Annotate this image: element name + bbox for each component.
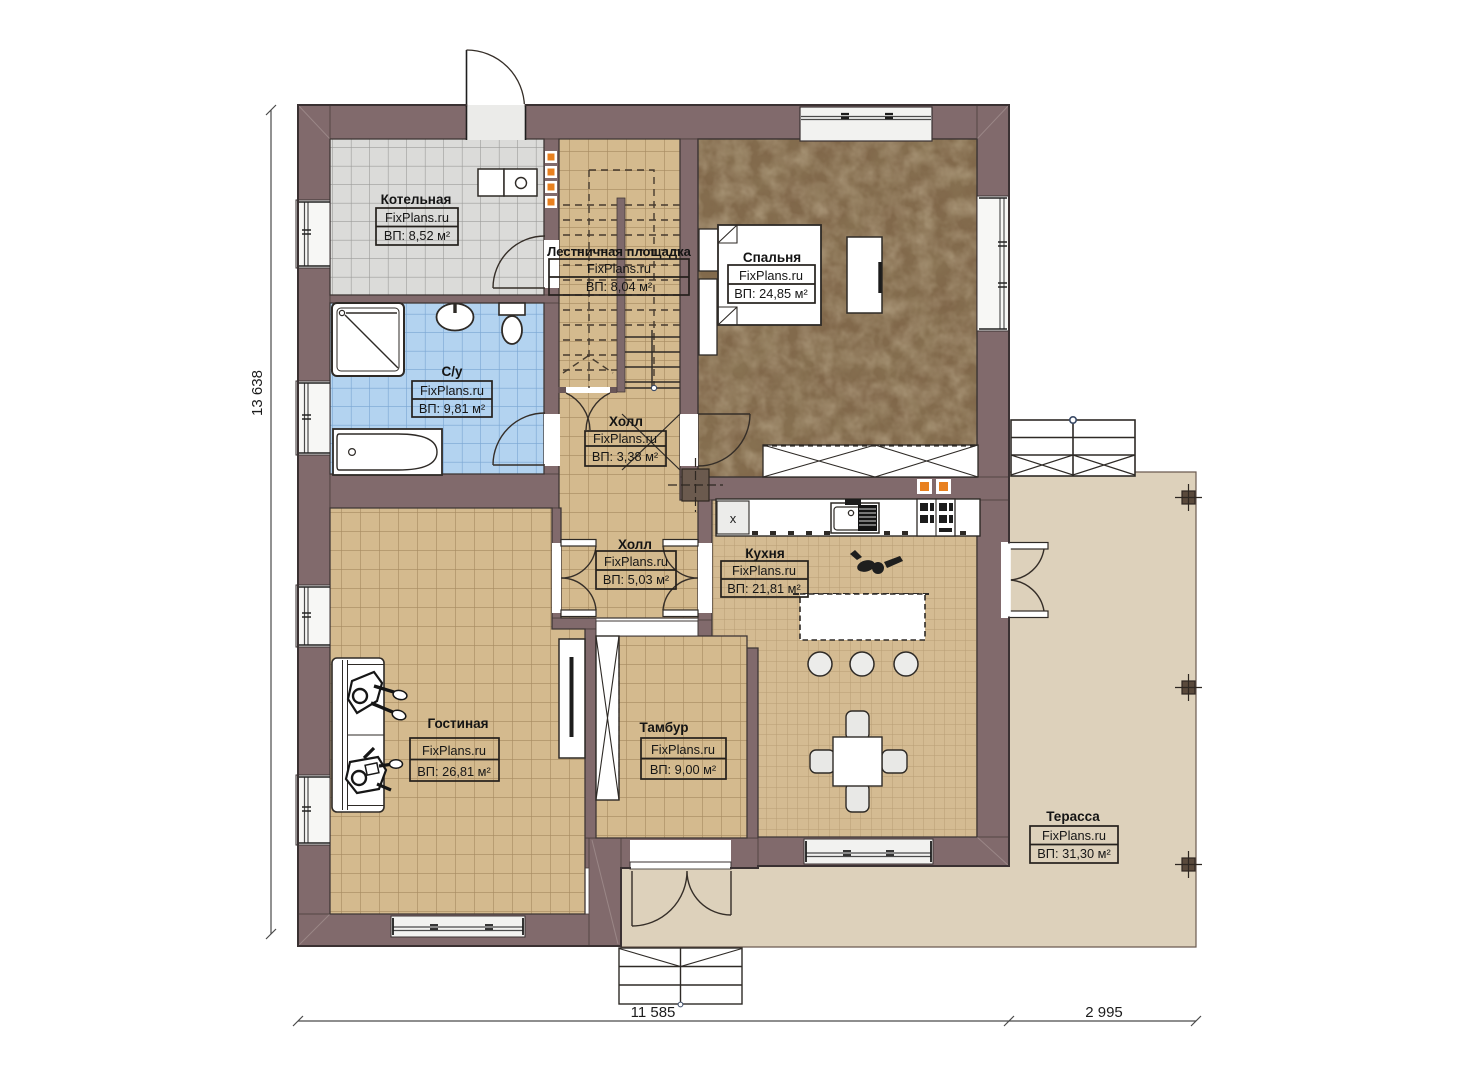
svg-text:Лестничная площадка: Лестничная площадка <box>547 244 691 259</box>
svg-text:ВП: 8,52 м²: ВП: 8,52 м² <box>384 228 451 243</box>
svg-text:ВП: 5,03 м²: ВП: 5,03 м² <box>603 572 670 587</box>
svg-text:Холл: Холл <box>609 414 643 429</box>
svg-text:2 995: 2 995 <box>1085 1004 1123 1021</box>
svg-text:Тамбур: Тамбур <box>640 720 689 735</box>
svg-text:FixPlans.ru: FixPlans.ru <box>732 563 796 578</box>
svg-text:FixPlans.ru: FixPlans.ru <box>739 268 803 283</box>
svg-text:Котельная: Котельная <box>381 192 452 207</box>
svg-text:ВП: 8,04 м²: ВП: 8,04 м² <box>586 279 653 294</box>
svg-text:11 585: 11 585 <box>631 1004 676 1021</box>
svg-text:ВП: 21,81 м²: ВП: 21,81 м² <box>727 581 801 596</box>
svg-text:ВП: 9,81 м²: ВП: 9,81 м² <box>419 401 486 416</box>
svg-text:FixPlans.ru: FixPlans.ru <box>604 554 668 569</box>
svg-text:ВП: 3,38 м²: ВП: 3,38 м² <box>592 449 659 464</box>
svg-text:x: x <box>730 511 737 526</box>
svg-text:FixPlans.ru: FixPlans.ru <box>422 743 486 758</box>
svg-text:Гостиная: Гостиная <box>427 716 488 731</box>
svg-text:FixPlans.ru: FixPlans.ru <box>587 261 651 276</box>
svg-text:Спальня: Спальня <box>743 250 801 265</box>
svg-text:ВП: 24,85 м²: ВП: 24,85 м² <box>734 286 808 301</box>
svg-text:FixPlans.ru: FixPlans.ru <box>385 210 449 225</box>
svg-text:ВП: 9,00 м²: ВП: 9,00 м² <box>650 762 717 777</box>
svg-text:13 638: 13 638 <box>249 370 266 416</box>
svg-text:FixPlans.ru: FixPlans.ru <box>651 742 715 757</box>
svg-text:Терасса: Терасса <box>1046 809 1100 824</box>
svg-text:FixPlans.ru: FixPlans.ru <box>1042 828 1106 843</box>
svg-text:Кухня: Кухня <box>745 546 784 561</box>
svg-text:ВП: 26,81 м²: ВП: 26,81 м² <box>417 764 491 779</box>
svg-text:Холл: Холл <box>618 537 652 552</box>
svg-text:FixPlans.ru: FixPlans.ru <box>420 383 484 398</box>
svg-text:ВП: 31,30 м²: ВП: 31,30 м² <box>1037 846 1111 861</box>
svg-text:С/у: С/у <box>441 364 463 379</box>
svg-text:FixPlans.ru: FixPlans.ru <box>593 431 657 446</box>
